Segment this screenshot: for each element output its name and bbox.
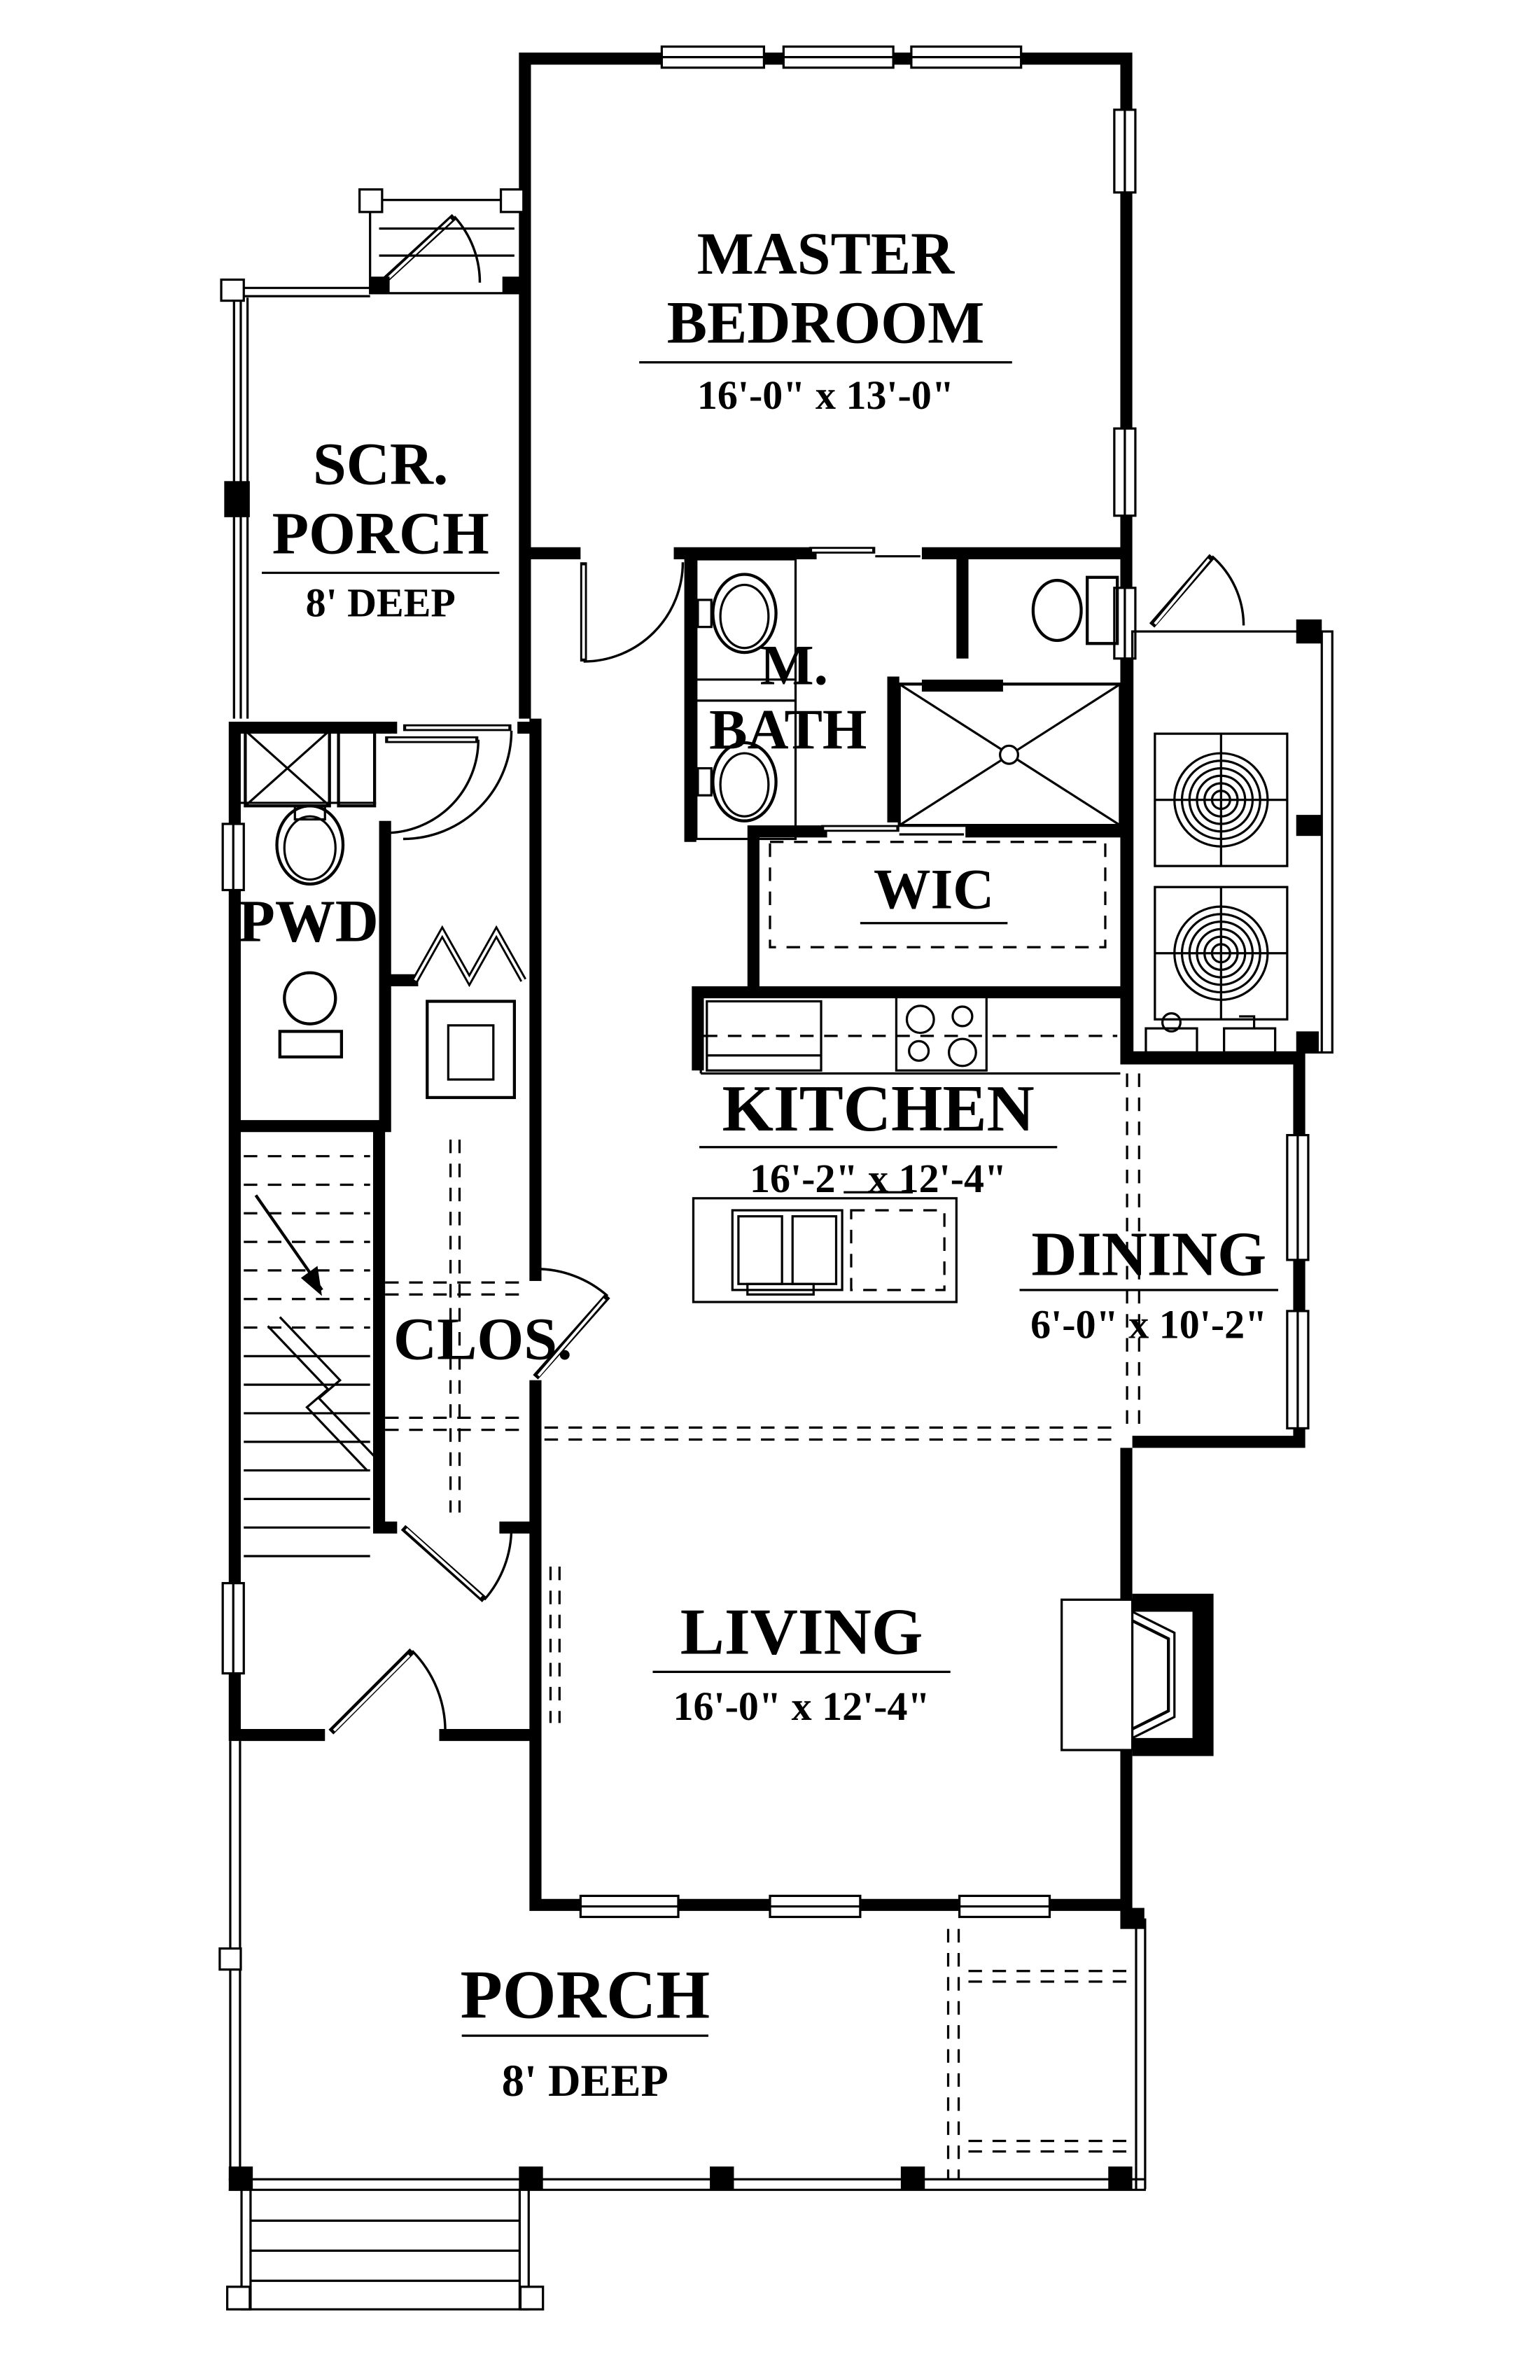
dishwasher: [851, 1210, 944, 1290]
window-master-right-1: [1114, 110, 1135, 192]
window-pwd-left: [223, 824, 244, 890]
porch-column: [1120, 1908, 1144, 1929]
dim-dining: 6'-0" x 10'-2": [1030, 1302, 1267, 1347]
window-living-front-1: [580, 1896, 678, 1917]
window-living-front-2: [770, 1896, 860, 1917]
window-entry-left: [223, 1583, 244, 1674]
dim-living: 16'-0" x 12'-4": [673, 1683, 930, 1729]
dim-master: 16'-0" x 13'-0": [697, 372, 954, 418]
label-porch: PORCH: [460, 1956, 710, 2033]
laundry-bifold-doors: [415, 932, 524, 981]
doors: [325, 216, 1243, 1744]
door-closet-bottom: [397, 1518, 511, 1599]
floor-plan-drawing: MASTER BEDROOM 16'-0" x 13'-0" SCR. PORC…: [0, 0, 1540, 2380]
pocket-door-master-bath: [809, 545, 922, 563]
porch-steps: [227, 2190, 543, 2309]
label-closet: CLOS.: [393, 1305, 572, 1373]
cooktop: [896, 995, 986, 1070]
dim-kitchen: 16'-2" x 12'-4": [750, 1156, 1007, 1201]
porch-column: [901, 2166, 925, 2190]
pwd-sink: [241, 803, 376, 884]
window-dining-right-1: [1287, 1135, 1308, 1260]
window-master-top-3: [911, 47, 1021, 68]
label-kitchen: KITCHEN: [722, 1072, 1034, 1145]
dim-scr: 8' DEEP: [306, 580, 456, 626]
porch-column: [1108, 2166, 1132, 2190]
appliance-box: [427, 1001, 514, 1097]
label-master-line2: BEDROOM: [667, 289, 984, 356]
door-powder-room: [376, 734, 478, 833]
window-dining-right-2: [1287, 1311, 1308, 1429]
label-dining: DINING: [1031, 1219, 1266, 1289]
porch-column: [229, 2166, 253, 2190]
kitchen-island: [693, 1192, 956, 1302]
label-wic: WIC: [874, 857, 994, 920]
label-living: LIVING: [680, 1596, 923, 1669]
shower: [899, 684, 1121, 825]
condenser-unit-1: [1155, 734, 1287, 866]
porch-column: [519, 2166, 542, 2190]
dim-porch: 8' DEEP: [502, 2056, 668, 2106]
porch-roof-dashed-area: [948, 1929, 1131, 2179]
door-master-to-stoop: [382, 216, 480, 283]
corner-post: [221, 279, 244, 300]
label-pwd: PWD: [238, 888, 378, 955]
screen-post: [224, 481, 250, 517]
label-mbath-line2: BATH: [709, 698, 867, 762]
rear-stoop: [360, 190, 524, 293]
window-master-top-1: [661, 47, 764, 68]
label-master-line1: MASTER: [697, 220, 955, 287]
fireplace: [1062, 1594, 1214, 1756]
staircase: [244, 1156, 379, 1556]
door-hvac-porch: [1146, 556, 1244, 638]
floor-plan-page: MASTER BEDROOM 16'-0" x 13'-0" SCR. PORC…: [0, 0, 1540, 2380]
condenser-unit-2: [1155, 887, 1287, 1019]
porch-column: [710, 2166, 734, 2190]
label-scr-line1: SCR.: [313, 430, 448, 498]
bath-toilet: [1033, 577, 1117, 644]
chase-box: [245, 731, 374, 806]
door-front-entry: [325, 1651, 445, 1744]
label-scr-line2: PORCH: [272, 499, 489, 566]
label-mbath-line1: M.: [760, 633, 828, 696]
door-master-bedroom: [580, 545, 682, 662]
window-master-top-2: [783, 47, 893, 68]
stair-direction-arrow: [255, 1196, 379, 1471]
porch-post: [220, 1949, 241, 1970]
stair-treads: [244, 1156, 370, 1556]
window-master-right-2: [1114, 428, 1135, 516]
window-living-front-3: [960, 1896, 1050, 1917]
pwd-toilet: [280, 973, 342, 1057]
hvac-platform: [1133, 619, 1333, 1053]
